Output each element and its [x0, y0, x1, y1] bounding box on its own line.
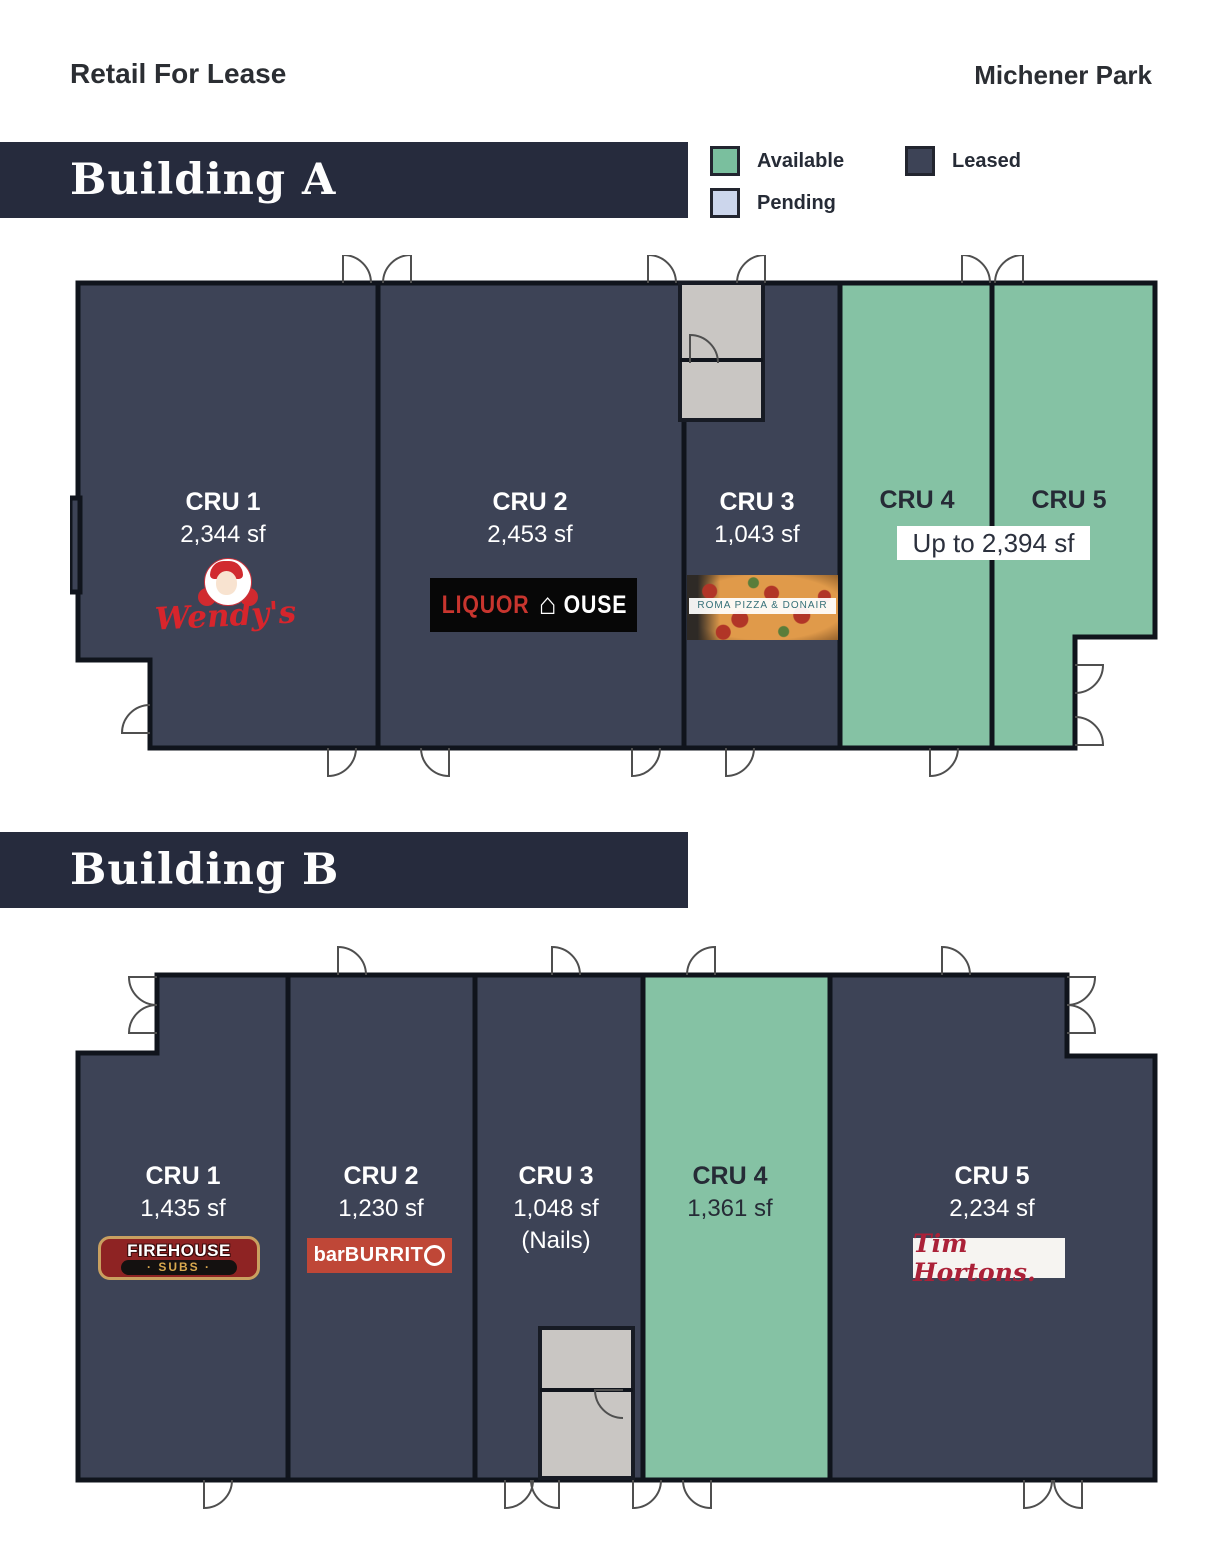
unit-id: CRU 1: [128, 486, 318, 519]
door-swing: [343, 255, 371, 283]
door-swing: [338, 947, 366, 975]
door-swing: [505, 1480, 533, 1508]
unit-note: (Nails): [461, 1225, 651, 1257]
door-swing: [129, 1005, 157, 1033]
door-swing: [1024, 1480, 1052, 1508]
unit-size: 1,043 sf: [682, 519, 832, 551]
legend-available-swatch: [710, 146, 740, 176]
building-a-vestibule: [680, 283, 763, 420]
door-swing: [737, 255, 765, 283]
combined-size-note: Up to 2,394 sf: [897, 526, 1090, 560]
building-b-cru1-room: [78, 975, 288, 1480]
building-a-banner: Building A: [0, 142, 688, 218]
door-swing: [1075, 717, 1103, 745]
unit-size: 1,361 sf: [635, 1193, 825, 1225]
barburrito-logo-text: bar: [314, 1244, 345, 1267]
unit-id: CRU 2: [286, 1160, 476, 1193]
unit-size: 2,234 sf: [897, 1193, 1087, 1225]
legend-pending-label: Pending: [757, 188, 836, 218]
page-title: Retail For Lease: [70, 58, 286, 90]
door-swing: [1054, 1480, 1082, 1508]
firehouse-subs-band: · SUBS ·: [121, 1260, 237, 1275]
unit-size: 1,048 sf: [461, 1193, 651, 1225]
unit-id: CRU 4: [635, 1160, 825, 1193]
door-swing: [648, 255, 676, 283]
door-swing: [930, 748, 958, 776]
door-swing: [687, 947, 715, 975]
door-swing: [204, 1480, 232, 1508]
door-swing: [726, 748, 754, 776]
firehouse-subs-logo: FIREHOUSE · SUBS ·: [98, 1236, 260, 1280]
unit-label-b-cru2: CRU 2 1,230 sf: [286, 1160, 476, 1225]
unit-size: 2,453 sf: [435, 519, 625, 551]
unit-label-a-cru2: CRU 2 2,453 sf: [435, 486, 625, 551]
door-swing: [962, 255, 990, 283]
unit-label-b-cru5: CRU 5 2,234 sf: [897, 1160, 1087, 1225]
unit-label-a-cru5: CRU 5: [994, 484, 1144, 517]
building-b-cru5-room: [830, 975, 1155, 1480]
unit-id: CRU 1: [88, 1160, 278, 1193]
barburrito-logo-text: BURRIT: [345, 1244, 424, 1267]
tim-hortons-logo: Tim Hortons.: [913, 1238, 1065, 1278]
legend-available-label: Available: [757, 146, 844, 176]
liquor-logo-white-text: OUSE: [563, 591, 627, 620]
unit-size: 1,230 sf: [286, 1193, 476, 1225]
unit-id: CRU 4: [842, 484, 992, 517]
building-b-vestibule: [540, 1328, 633, 1478]
building-b-banner: Building B: [0, 832, 688, 908]
building-b-cru4-room: [643, 975, 830, 1480]
door-swing: [1067, 1005, 1095, 1033]
unit-size: 1,435 sf: [88, 1193, 278, 1225]
leasing-flyer-page: Retail For Lease Michener Park Building …: [0, 0, 1220, 1542]
roma-pizza-logo-text: ROMA PIZZA & DONAIR: [689, 598, 836, 614]
legend-leased-label: Leased: [952, 146, 1021, 176]
roma-pizza-photo: ROMA PIZZA & DONAIR: [687, 575, 838, 640]
door-swing: [383, 255, 411, 283]
unit-label-a-cru4: CRU 4: [842, 484, 992, 517]
door-swing: [531, 1480, 559, 1508]
door-swing: [995, 255, 1023, 283]
unit-label-a-cru3: CRU 3 1,043 sf: [682, 486, 832, 551]
unit-id: CRU 3: [461, 1160, 651, 1193]
unit-size: 2,344 sf: [128, 519, 318, 551]
barburrito-logo: bar BURRIT O: [307, 1238, 452, 1273]
door-swing: [1075, 665, 1103, 693]
door-swing: [421, 748, 449, 776]
house-icon: ⌂: [539, 590, 557, 620]
unit-id: CRU 5: [994, 484, 1144, 517]
unit-label-b-cru4: CRU 4 1,361 sf: [635, 1160, 825, 1225]
door-swing: [552, 947, 580, 975]
legend-leased-swatch: [905, 146, 935, 176]
door-swing: [122, 705, 150, 733]
unit-id: CRU 3: [682, 486, 832, 519]
door-swing: [942, 947, 970, 975]
liquor-house-logo: LIQUOR ⌂ OUSE: [430, 578, 637, 632]
unit-id: CRU 5: [897, 1160, 1087, 1193]
liquor-logo-red-text: LIQUOR: [442, 591, 530, 620]
door-swing: [632, 748, 660, 776]
firehouse-logo-text: FIREHOUSE: [101, 1241, 257, 1260]
unit-id: CRU 2: [435, 486, 625, 519]
unit-label-b-cru3: CRU 3 1,048 sf (Nails): [461, 1160, 651, 1257]
building-a-cru1-wall-bump: [70, 498, 80, 592]
legend-pending-swatch: [710, 188, 740, 218]
building-b-cru2-room: [288, 975, 475, 1480]
door-swing: [633, 1480, 661, 1508]
unit-label-b-cru1: CRU 1 1,435 sf: [88, 1160, 278, 1225]
door-swing: [683, 1480, 711, 1508]
door-swing: [129, 977, 157, 1005]
door-swing: [1067, 977, 1095, 1005]
door-swing: [328, 748, 356, 776]
burrito-o-icon: O: [424, 1245, 445, 1266]
unit-label-a-cru1: CRU 1 2,344 sf: [128, 486, 318, 551]
project-name: Michener Park: [974, 60, 1152, 91]
